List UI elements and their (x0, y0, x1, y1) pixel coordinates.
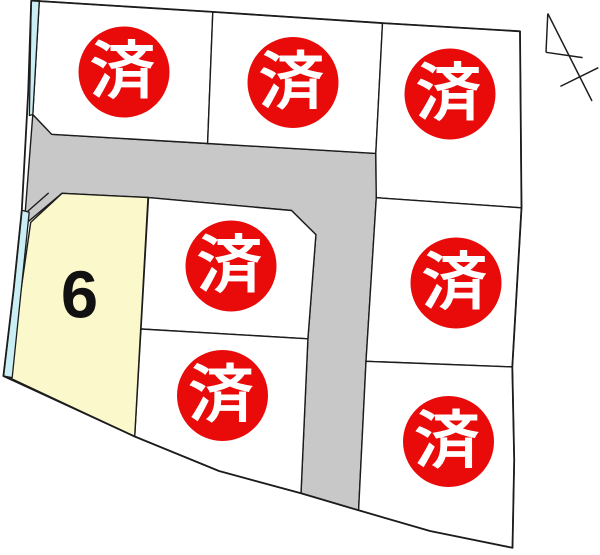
svg-text:6: 6 (61, 258, 98, 333)
